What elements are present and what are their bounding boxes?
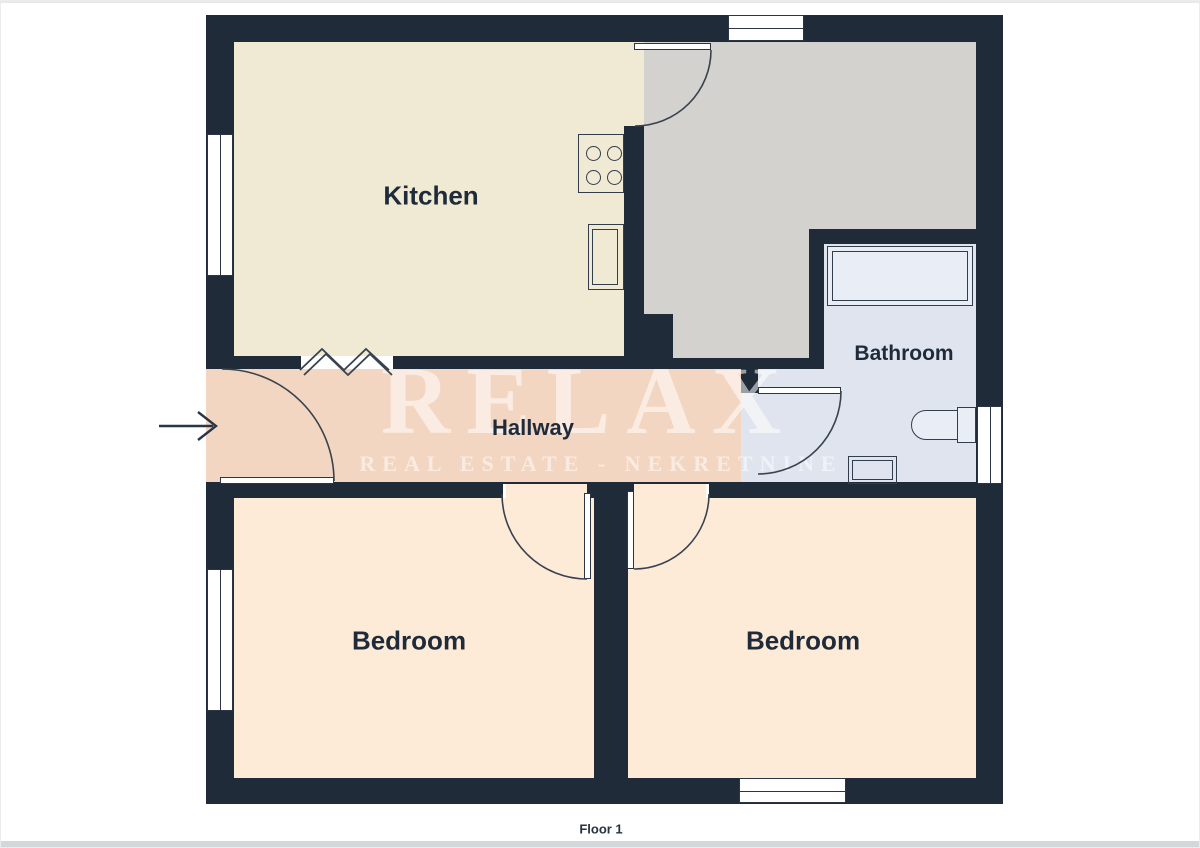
room-label-kitchen: Kitchen — [383, 181, 478, 212]
bedroom-right-doorway-gap — [634, 484, 706, 498]
stove-icon — [578, 134, 624, 193]
window-bedroom-left — [207, 569, 233, 711]
toilet-bowl-icon — [911, 410, 958, 440]
stove-burner-icon — [607, 170, 622, 185]
entry-door-leaf — [220, 477, 334, 484]
door-frame-mark — [503, 484, 506, 498]
wall-opening-gap — [301, 356, 393, 369]
bedroom-right-door-leaf — [627, 491, 634, 569]
bedroom-left-doorway-gap — [506, 484, 587, 498]
gray-room-door-leaf — [634, 43, 711, 50]
floor-plan-page: RELAX REAL ESTATE - NEKRETNINE — [0, 0, 1200, 848]
bathtub-basin — [832, 251, 968, 301]
page-bottom-strip — [1, 841, 1200, 848]
window-bedroom-bottom — [739, 778, 846, 803]
window-pane-divider — [740, 791, 845, 792]
watermark-subtitle: REAL ESTATE - NEKRETNINE — [359, 451, 842, 477]
page-top-border — [1, 1, 1199, 3]
stove-burner-icon — [586, 170, 601, 185]
window-pane-divider — [220, 135, 221, 275]
bedroom-left-door-leaf — [584, 493, 591, 579]
bathroom-door-leaf — [758, 387, 841, 394]
room-gray-upper — [644, 42, 976, 229]
bathroom-sink-basin — [852, 460, 893, 480]
kitchen-sink-basin — [592, 229, 618, 285]
stove-burner-icon — [607, 146, 622, 161]
window-top — [728, 15, 804, 41]
room-label-bedroom-left: Bedroom — [352, 626, 466, 657]
room-label-bedroom-right: Bedroom — [746, 626, 860, 657]
room-label-bathroom: Bathroom — [854, 342, 953, 366]
window-pane-divider — [729, 28, 803, 29]
window-kitchen-left — [207, 134, 233, 276]
room-label-hallway: Hallway — [492, 415, 574, 441]
floor-label: Floor 1 — [579, 822, 622, 837]
window-bathroom-right — [977, 406, 1002, 484]
window-pane-divider — [990, 407, 991, 483]
stove-burner-icon — [586, 146, 601, 161]
window-pane-divider — [220, 570, 221, 710]
watermark-title: RELAX — [381, 353, 797, 449]
door-frame-mark — [706, 484, 709, 498]
toilet-tank-icon — [957, 407, 976, 443]
kitchen-doorway-gap — [624, 42, 644, 126]
